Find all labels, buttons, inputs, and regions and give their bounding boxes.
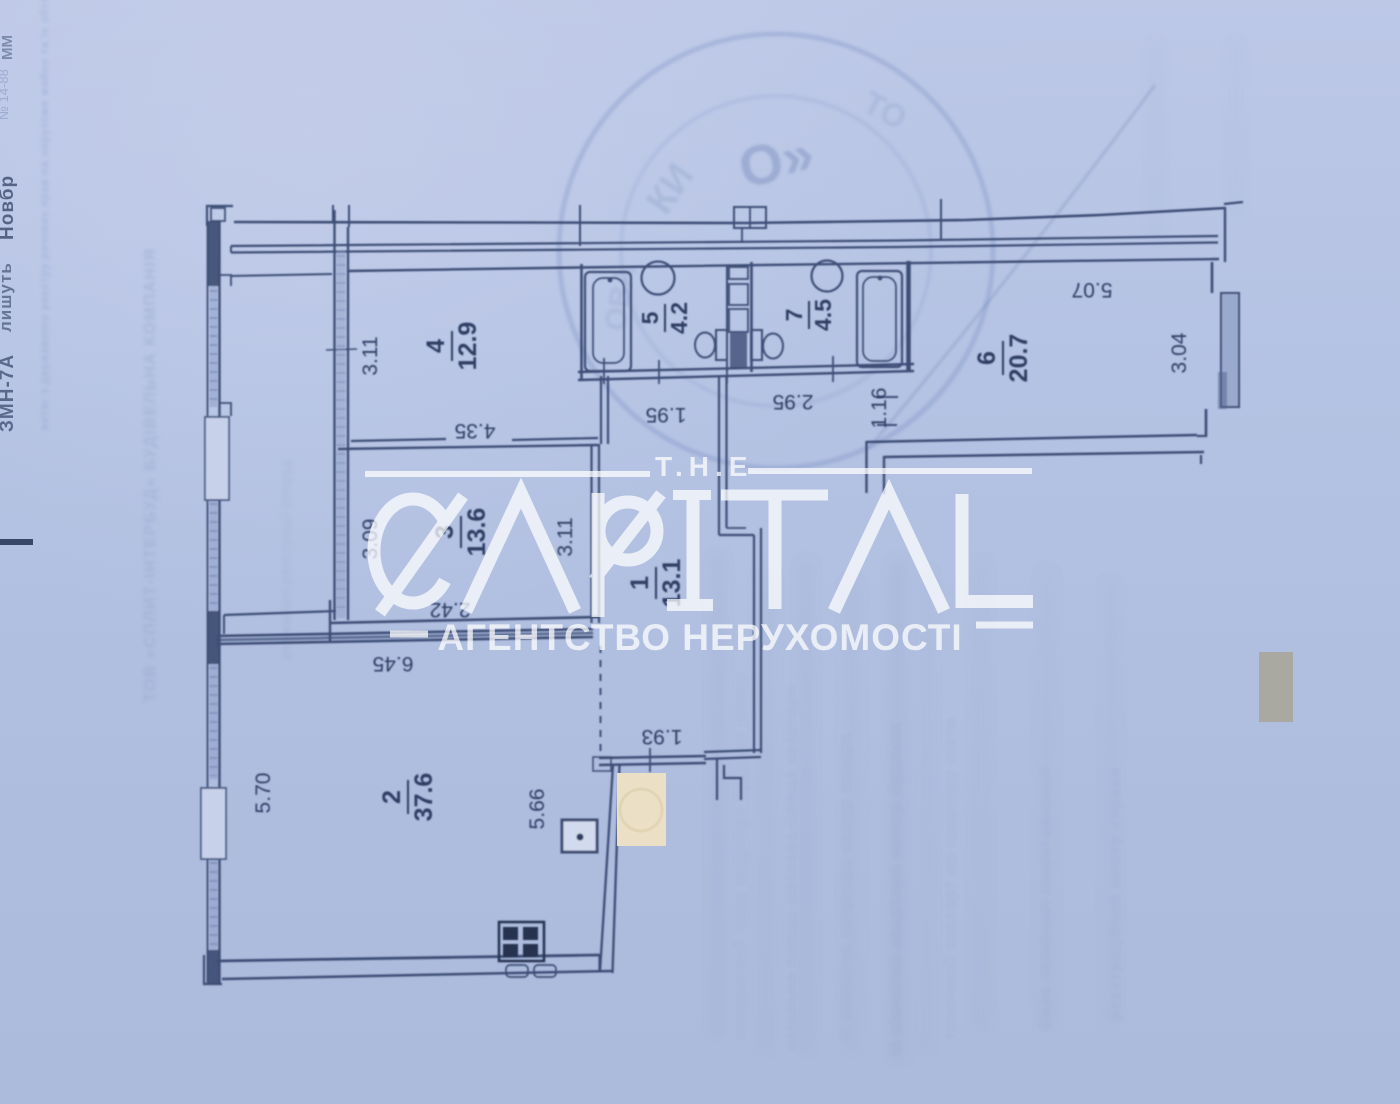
svg-text:6: 6	[973, 351, 1001, 365]
svg-text:37.6: 37.6	[410, 773, 438, 822]
svg-text:1.95: 1.95	[646, 403, 687, 426]
svg-text:12.9: 12.9	[454, 322, 482, 371]
svg-text:5.07: 5.07	[1072, 278, 1113, 301]
svg-text:витяг з державного реєстру реч: витяг з державного реєстру речових прав …	[39, 0, 51, 430]
svg-text:АГЕНТСТВО НЕРУХОМОСТІ: АГЕНТСТВО НЕРУХОМОСТІ	[437, 617, 962, 658]
svg-text:1.93: 1.93	[642, 725, 683, 748]
svg-text:7: 7	[781, 309, 807, 322]
svg-text:3.04: 3.04	[1168, 332, 1191, 373]
svg-text:№ 14-88: № 14-88	[0, 69, 11, 120]
svg-text:реєстраційний номер справи: реєстраційний номер справи	[1107, 767, 1124, 1020]
svg-text:лишуть: лишуть	[0, 262, 15, 332]
svg-text:загальна площа житлова площа к: загальна площа житлова площа квартири	[782, 684, 799, 1050]
svg-text:технічний паспорт на квартиру: технічний паспорт на квартиру місто	[942, 717, 959, 1040]
svg-text:державної реєстрації споруд: державної реєстрації споруд	[278, 459, 293, 660]
svg-text:4.5: 4.5	[810, 299, 836, 331]
svg-text:М кімнатна квартира номер буди: М кімнатна квартира номер будинок	[887, 721, 904, 1055]
svg-text:2.95: 2.95	[773, 390, 814, 413]
svg-text:ЗМН-7А: ЗМН-7А	[0, 354, 18, 432]
svg-text:3.11: 3.11	[359, 336, 382, 375]
svg-text:2: 2	[378, 790, 406, 804]
svg-text:бюро технічної інвентаризації: бюро технічної інвентаризації	[1037, 766, 1054, 1030]
svg-text:T.H.E: T.H.E	[655, 451, 753, 482]
svg-text:3.11: 3.11	[554, 517, 577, 556]
svg-text:4: 4	[422, 339, 450, 353]
svg-text:6.45: 6.45	[373, 652, 414, 675]
svg-text:13.6: 13.6	[463, 508, 491, 557]
svg-text:4.2: 4.2	[666, 302, 692, 334]
svg-text:5: 5	[637, 311, 663, 324]
svg-text:Новбр: Новбр	[0, 175, 18, 240]
svg-text:1.16: 1.16	[868, 388, 891, 429]
svg-text:ММ: ММ	[0, 35, 16, 60]
svg-text:5.70: 5.70	[252, 773, 275, 814]
svg-text:ТОВ «СПЛИТ-ІНТЕРБУД» БУДІВЕЛЬН: ТОВ «СПЛИТ-ІНТЕРБУД» БУДІВЕЛЬНА КОМПАНІЯ	[142, 248, 159, 702]
svg-text:поверховий план квартири будин: поверховий план квартири будинку номер	[732, 671, 749, 1040]
svg-text:4.35: 4.35	[455, 419, 496, 442]
svg-text:1: 1	[626, 576, 654, 590]
svg-text:20.7: 20.7	[1005, 334, 1033, 383]
svg-text:5.66: 5.66	[526, 789, 549, 830]
svg-text:М кімнатна квартира номер пове: М кімнатна квартира номер поверх	[837, 732, 854, 1040]
